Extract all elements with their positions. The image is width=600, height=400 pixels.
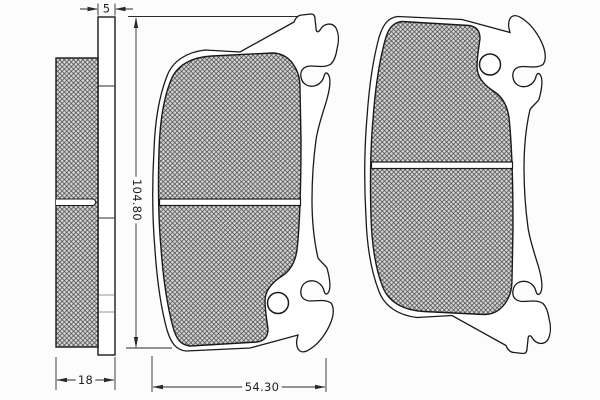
dimension-pad-width: 54.30 (152, 356, 326, 394)
dim-label-pad-height: 104.80 (130, 179, 144, 221)
outer-pad-shape (365, 16, 551, 354)
dim-label-pad-thickness: 18 (78, 373, 93, 387)
pad-hole (268, 293, 289, 314)
dimension-pad-thickness: 18 (56, 357, 115, 390)
side-view-backing-plate (98, 17, 115, 355)
dimension-plate-thickness: 5 (80, 2, 133, 16)
dim-label-pad-width: 54.30 (245, 380, 279, 394)
side-view-groove (56, 199, 96, 206)
dim-label-plate-thickness: 5 (103, 2, 111, 16)
technical-drawing: 5 18 104.80 54.30 (0, 0, 600, 400)
side-view (56, 17, 115, 355)
inner-pad-front-view (153, 14, 339, 352)
outer-pad-front-view (365, 16, 551, 354)
pad-groove (160, 199, 301, 206)
